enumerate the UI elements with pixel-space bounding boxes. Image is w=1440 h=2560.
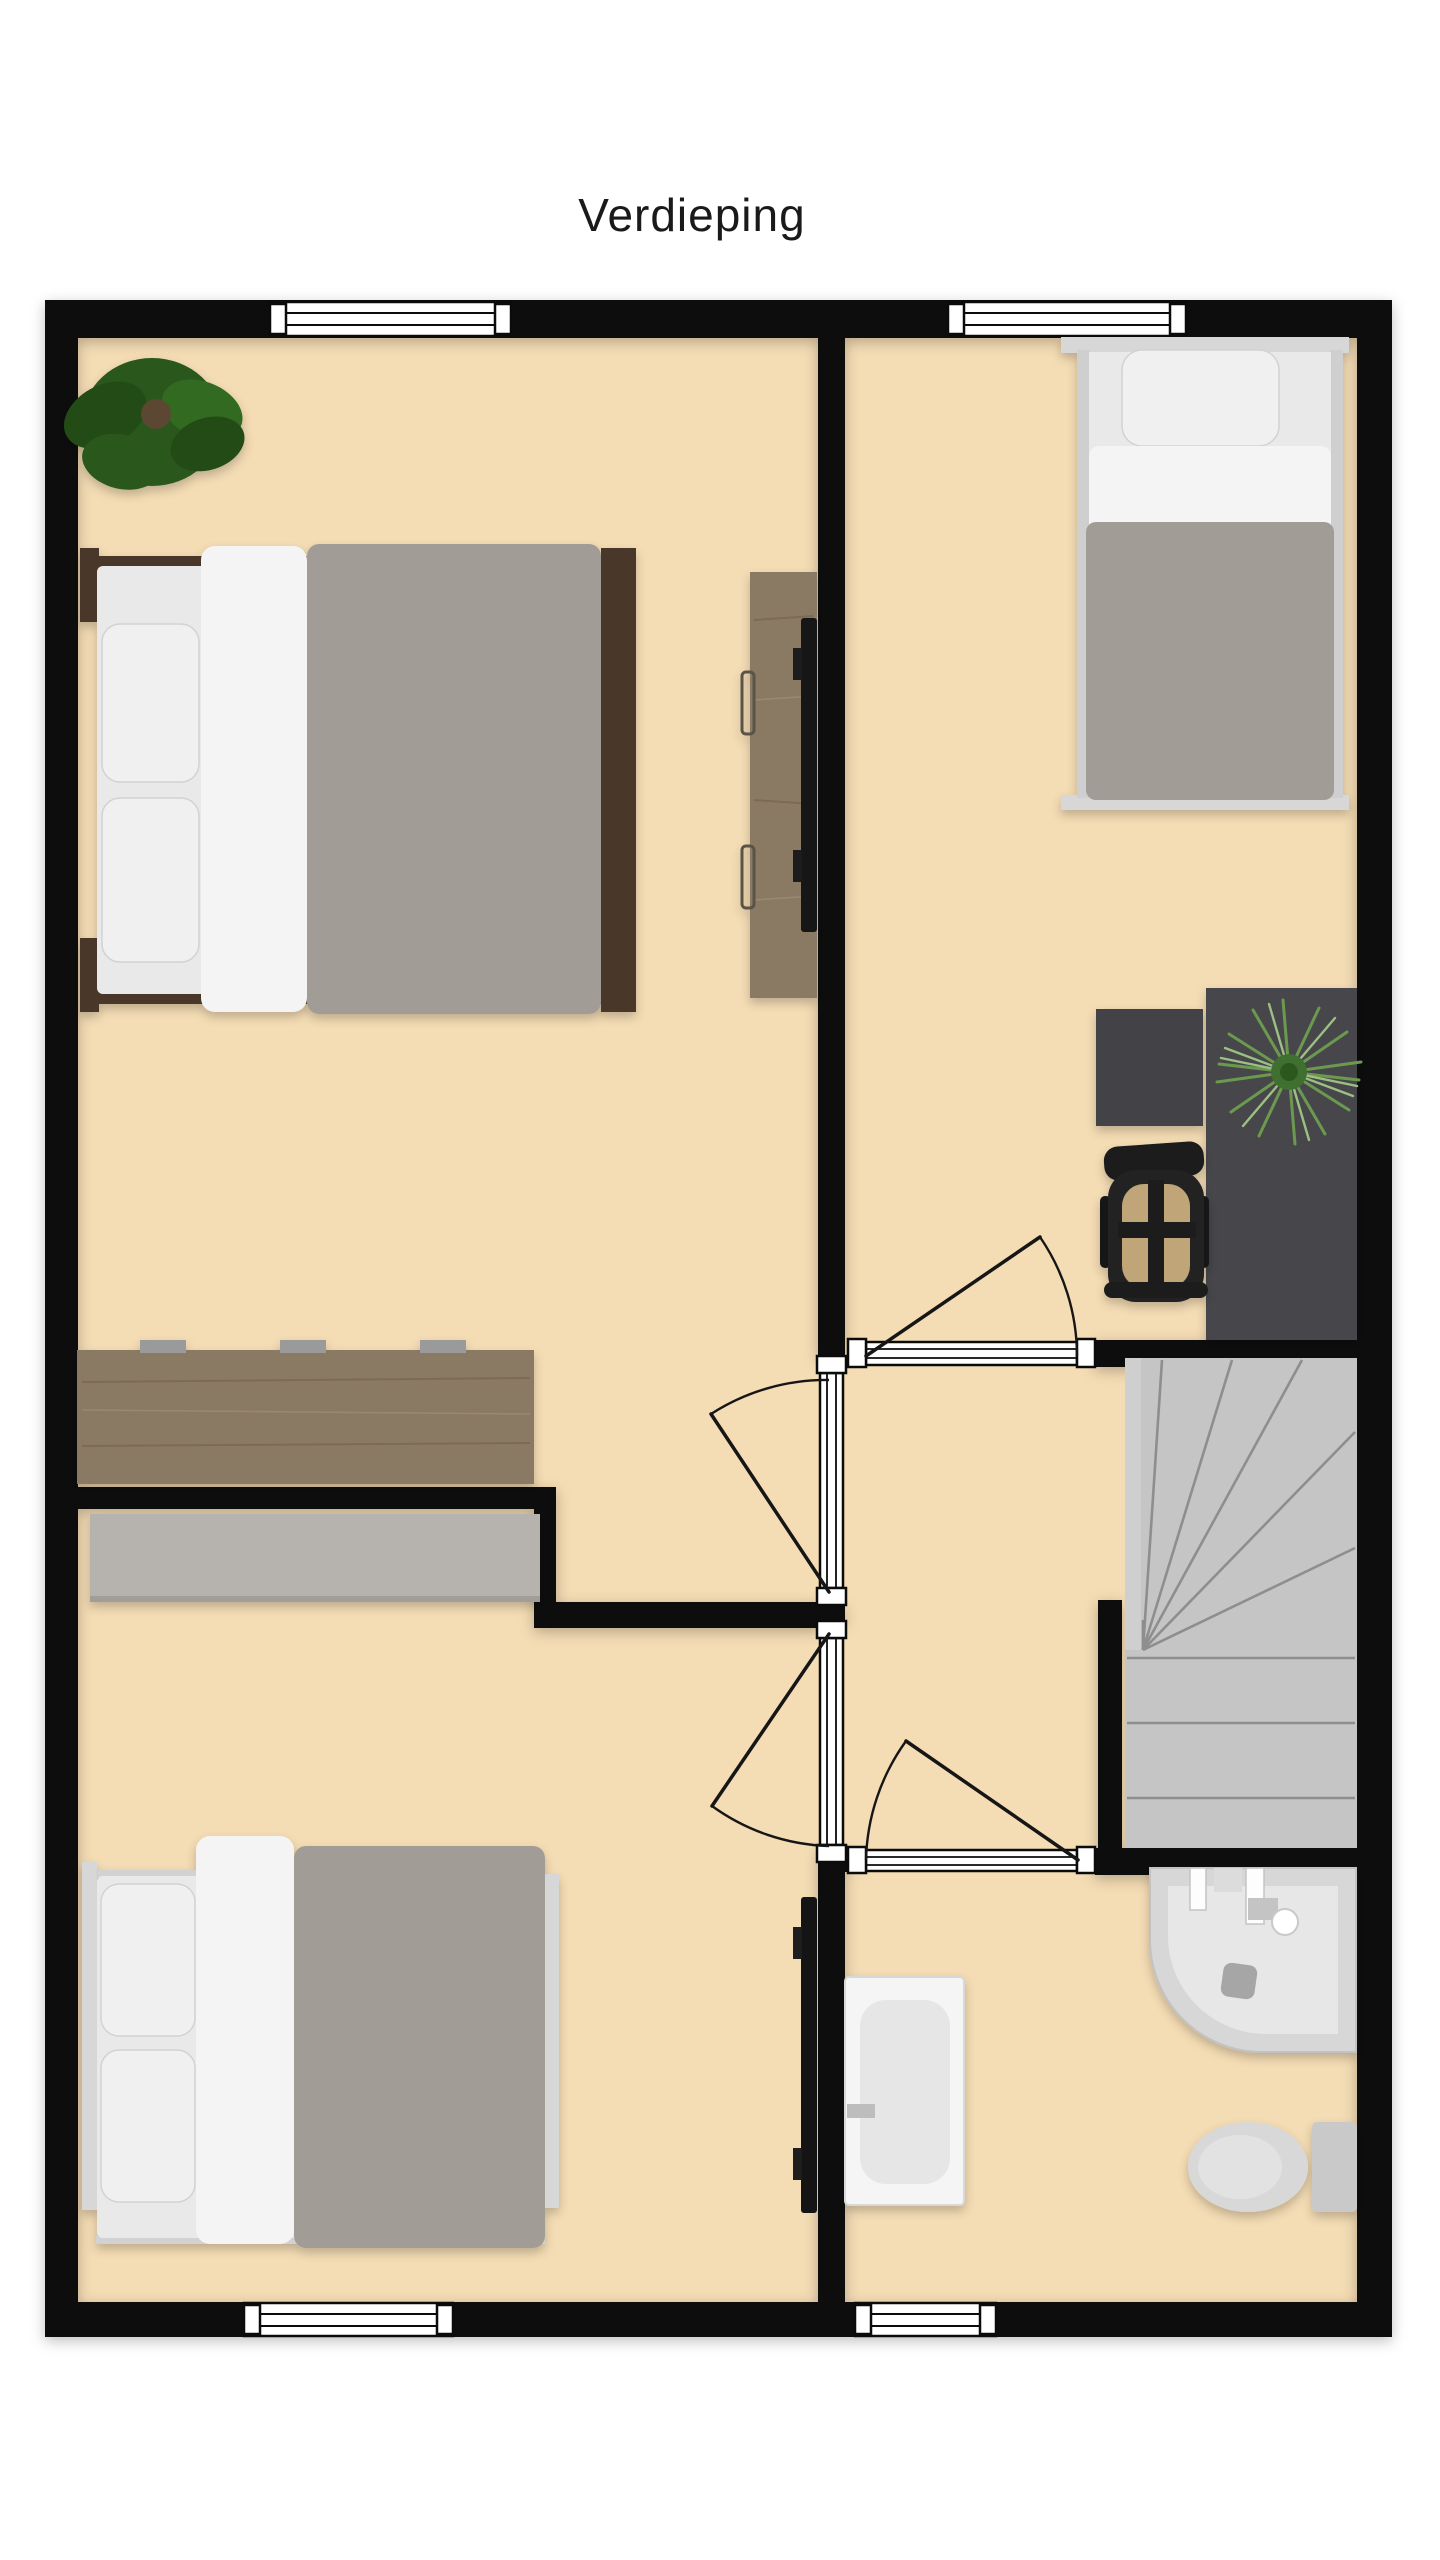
desk-return [1096,1009,1203,1126]
wall-interior-vertical-mid [818,1605,845,1621]
window-top-right [948,302,1186,336]
tv-top [801,618,817,932]
toilet [1188,2122,1357,2212]
wall-top [45,300,1392,338]
wardrobe [90,1514,540,1602]
shower-drain [1220,1962,1258,2000]
wall-desk-with-tv [742,572,817,998]
window-top-left [270,302,511,336]
floorplan [0,0,1440,2560]
bath-faucet [847,2104,875,2118]
staircase [1125,1358,1357,1848]
double-bed-bottom [82,1836,559,2248]
toilet-tank [1312,2122,1357,2212]
window-bottom-left [244,2303,453,2336]
bathtub [845,1977,964,2205]
wall-right [1357,300,1392,2337]
sideboard [77,1340,534,1484]
window-bottom-bathroom [855,2303,996,2336]
wall-interior-vertical-lower [818,1862,845,2302]
double-bed-top [80,544,636,1014]
wall-interior-vertical-upper [818,338,845,1356]
wall-closet-left [48,1487,556,1509]
wall-stair-left [1098,1600,1122,1875]
office-chair [1100,1141,1209,1302]
wall-bedroom-bottomleft-top [534,1602,818,1628]
single-bed [1061,337,1349,810]
wall-left [45,300,78,2337]
